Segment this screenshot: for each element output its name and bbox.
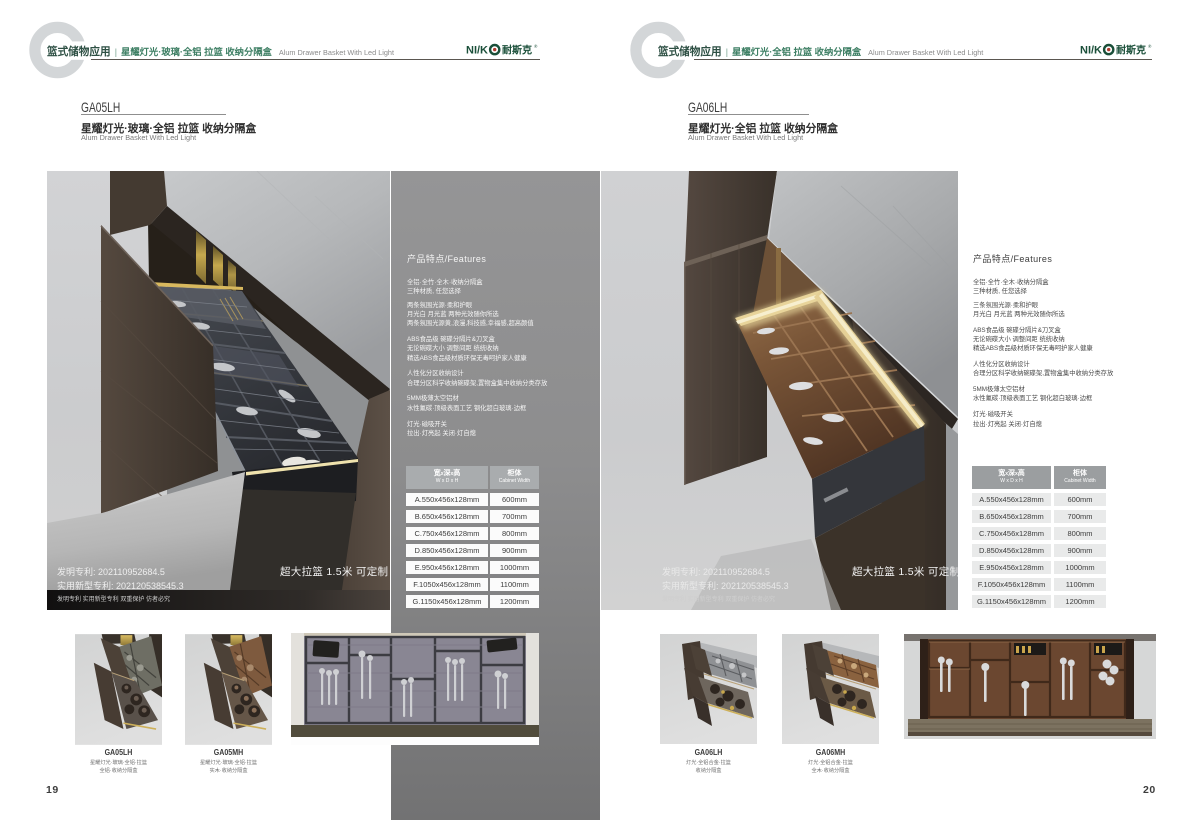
svg-text:超大拉篮 1.5米 可定制: 超大拉篮 1.5米 可定制	[852, 565, 958, 578]
svg-text:发明专利: 202110952684.5: 发明专利: 202110952684.5	[662, 566, 770, 577]
svg-text:超大拉篮 1.5米 可定制: 超大拉篮 1.5米 可定制	[280, 565, 388, 578]
svg-text:实用新型专利: 202120538545.3: 实用新型专利: 202120538545.3	[57, 580, 184, 591]
svg-text:耐斯克: 耐斯克	[502, 43, 532, 56]
svg-text:实用新型专利: 202120538545.3: 实用新型专利: 202120538545.3	[662, 580, 789, 591]
svg-text:发明专利 实用新型专利 双重保护 仿者必究: 发明专利 实用新型专利 双重保护 仿者必究	[57, 595, 170, 603]
svg-text:耐斯克: 耐斯克	[1116, 43, 1146, 56]
svg-text:NI/K: NI/K	[1080, 45, 1102, 57]
svg-text:®: ®	[1148, 43, 1152, 49]
svg-text:NI/K: NI/K	[466, 45, 488, 57]
svg-text:®: ®	[534, 43, 538, 49]
svg-text:发明专利: 202110952684.5: 发明专利: 202110952684.5	[57, 566, 165, 577]
svg-text:发明专利 实用新型专利 双重保护 仿者必究: 发明专利 实用新型专利 双重保护 仿者必究	[662, 595, 775, 603]
